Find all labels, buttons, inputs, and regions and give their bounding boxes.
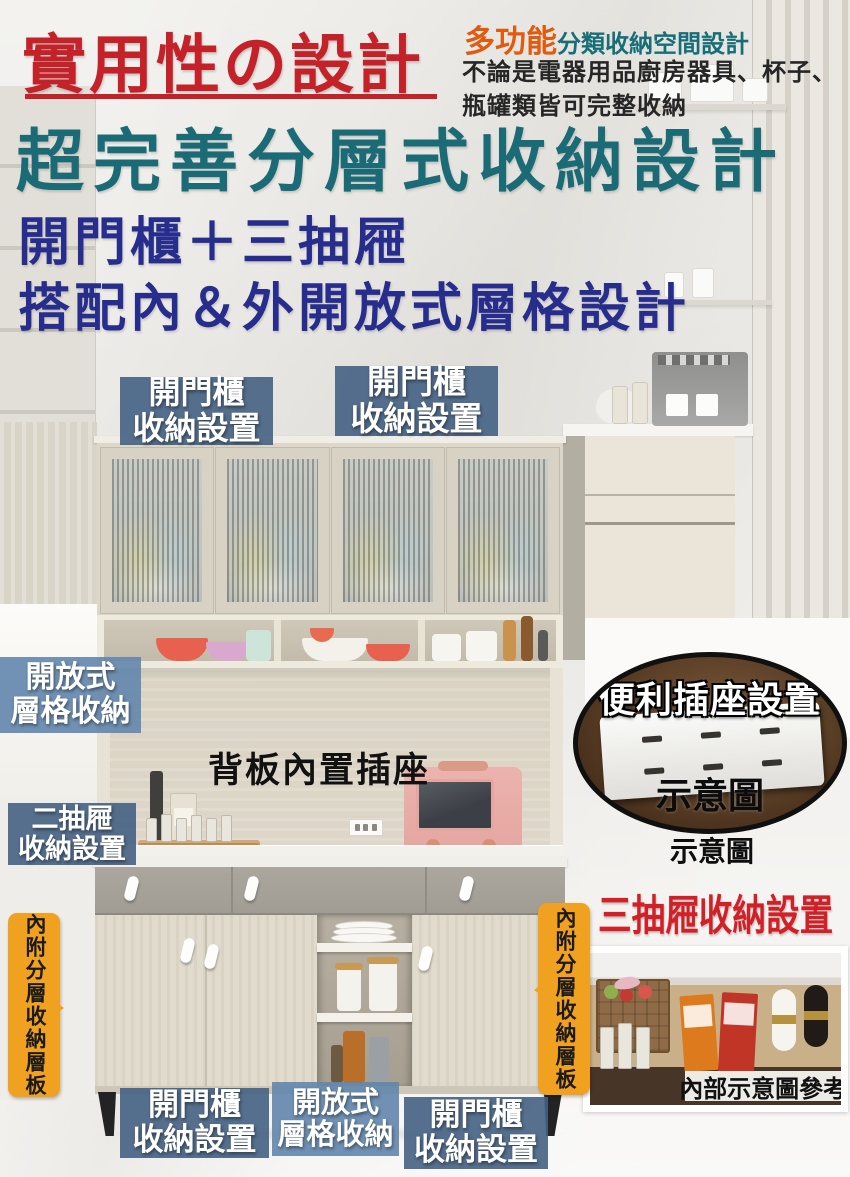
- canister: [369, 961, 397, 1011]
- coffee-cup: [666, 394, 688, 416]
- glass-door: [216, 448, 328, 613]
- callout-text: 開門櫃: [120, 1088, 269, 1123]
- drawer-interior-photo: 內部示意圖參考: [590, 953, 841, 1105]
- bottle: [618, 1023, 632, 1069]
- callout-text: 開放式: [272, 1087, 399, 1119]
- socket-inset-caption: 示意圖: [578, 767, 842, 819]
- drawer-interior-inset: 內部示意圖參考: [583, 946, 848, 1112]
- shelf-board: [317, 1013, 412, 1022]
- drawer-divider: [231, 867, 233, 913]
- base-drawer-row: [95, 867, 565, 915]
- wooden-board: [503, 620, 516, 661]
- coral-bowl: [156, 638, 208, 661]
- gray-jar: [369, 1037, 389, 1083]
- toaster-handle: [438, 761, 488, 771]
- canister: [612, 386, 628, 424]
- spice-bottle: [221, 815, 232, 842]
- bottle: [600, 1027, 614, 1069]
- callout-back-panel-outlet: 背板內置插座: [208, 742, 430, 793]
- canister: [337, 967, 361, 1011]
- headline: 超完善分層式收納設計: [16, 106, 786, 205]
- open-shelf-interior: [104, 620, 556, 661]
- callout-base-right-doors: 開門櫃 收納設置: [404, 1097, 548, 1169]
- callout-text: 二抽屜: [8, 804, 136, 834]
- pink-bowl: [206, 642, 250, 661]
- socket-detail-inset: 便利插座設置 示意圖: [573, 652, 847, 834]
- coffee-machine-panel: [652, 352, 736, 368]
- drawer-divider: [425, 867, 427, 913]
- canister-lid: [335, 963, 363, 970]
- glass-door: [101, 448, 213, 613]
- callout-two-drawers: 二抽屜 收納設置: [8, 803, 136, 865]
- title-underline: [25, 94, 437, 99]
- plate: [331, 933, 397, 943]
- callout-text: 收納設置: [335, 401, 498, 438]
- promo-page: 實用性の設計 多功能分類收納空間設計 不論是電器用品廚房器具、杯子、 瓶罐類皆可…: [0, 0, 850, 1177]
- spice-bottle: [146, 818, 157, 842]
- base-open-shelf-bay: [317, 915, 412, 1088]
- drawer-inset-caption: 內部示意圖參考: [685, 1071, 841, 1101]
- canister: [632, 382, 648, 424]
- background-left-cabinet: [0, 422, 97, 604]
- coffee-cup: [696, 394, 718, 416]
- cabinet-glass-door-section: [97, 443, 563, 615]
- coral-bowl: [366, 644, 410, 661]
- built-in-outlet: [349, 819, 383, 836]
- callout-text: 開門櫃: [120, 375, 273, 411]
- background-glass: [692, 268, 714, 298]
- shelf-partition: [274, 620, 281, 661]
- callout-text: 收納設置: [404, 1133, 548, 1168]
- cabinet-open-shelf-row: [97, 615, 563, 668]
- sketch-caption: 示意圖: [652, 830, 772, 870]
- callout-base-open-shelf: 開放式 層格收納: [272, 1082, 399, 1156]
- callout-base-left-doors: 開門櫃 收納設置: [120, 1088, 269, 1158]
- callout-text: 收納設置: [8, 834, 136, 864]
- callout-hutch-left-doors: 開門櫃 收納設置: [120, 377, 273, 445]
- callout-open-shelf: 開放式 層格收納: [0, 657, 141, 733]
- tag-shelf-board-left: 內附分層收納層板: [8, 913, 60, 1097]
- white-bowl: [302, 638, 368, 661]
- callout-text: 層格收納: [0, 695, 141, 729]
- background-cabinet-side: [563, 436, 585, 660]
- spice-bottle: [206, 818, 217, 842]
- small-jar: [331, 1045, 343, 1083]
- canister-lid: [367, 957, 399, 964]
- callout-text: 開門櫃: [404, 1098, 548, 1133]
- spice-bottle: [161, 814, 172, 842]
- juice-box: [679, 994, 718, 1072]
- white-mug: [466, 631, 497, 661]
- subtitle-line-2: 搭配內＆外開放式層格設計: [18, 266, 690, 341]
- background-drawers: [585, 436, 735, 618]
- callout-text: 收納設置: [120, 1123, 269, 1158]
- base-counter-edge: [93, 857, 567, 867]
- fruit: [620, 989, 633, 1002]
- bottle: [636, 1027, 650, 1069]
- pepper-mill: [521, 616, 533, 661]
- callout-text: 開門櫃: [335, 364, 498, 401]
- glass-door: [332, 448, 444, 613]
- juice-box: [718, 992, 758, 1074]
- description-line-1: 不論是電器用品廚房器具、杯子、: [462, 52, 837, 87]
- main-title: 實用性の設計: [22, 14, 424, 106]
- amber-jar: [343, 1031, 365, 1083]
- black-napkin-roll: [804, 985, 828, 1047]
- spice-bottle: [176, 818, 187, 842]
- subtitle-line-1: 開門櫃＋三抽屜: [18, 200, 410, 275]
- spice-jar: [538, 630, 548, 661]
- callout-text: 開放式: [0, 661, 141, 695]
- door-divider: [205, 915, 207, 1088]
- shelf-partition: [418, 620, 425, 661]
- tag-shelf-board-right: 內附分層收納層板: [538, 903, 590, 1095]
- callout-text: 層格收納: [272, 1119, 399, 1151]
- spice-bottle: [191, 815, 202, 842]
- white-mug: [432, 634, 461, 661]
- callout-hutch-right-doors: 開門櫃 收納設置: [335, 366, 498, 436]
- white-napkin-roll: [772, 989, 796, 1051]
- callout-text: 收納設置: [120, 411, 273, 447]
- three-drawer-title: 三抽屜收納設置: [598, 882, 833, 943]
- shelf-board: [317, 943, 412, 952]
- glass-door: [447, 448, 559, 613]
- fruit: [638, 985, 652, 999]
- base-door-section: [95, 915, 565, 1088]
- socket-inset-title: 便利插座設置: [578, 671, 842, 723]
- coffee-machine: [652, 352, 748, 426]
- mint-cup: [246, 630, 271, 661]
